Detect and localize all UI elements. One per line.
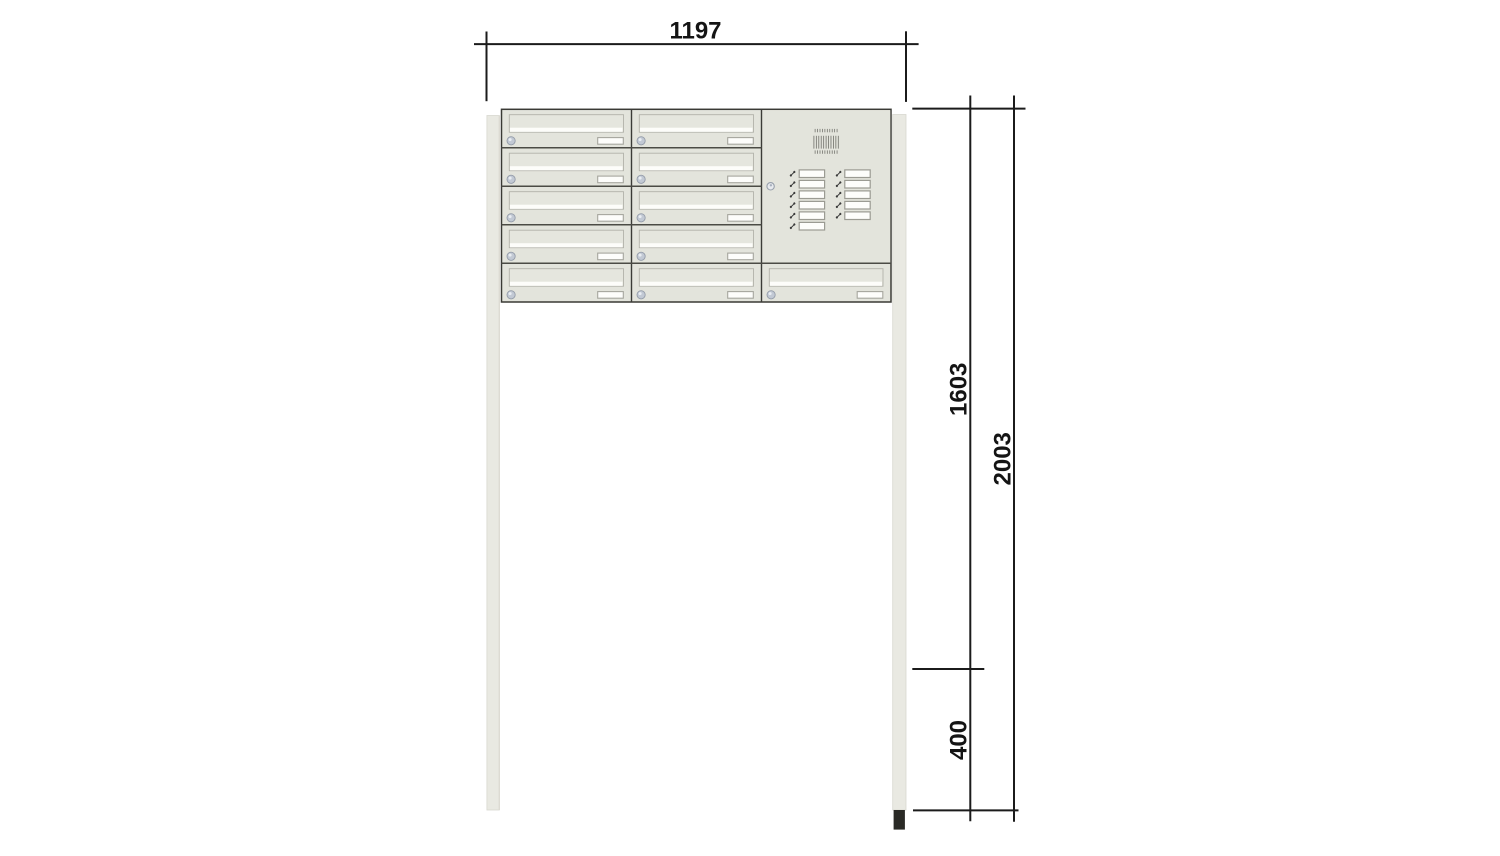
svg-text:1197: 1197 (669, 18, 721, 45)
svg-text:2003: 2003 (990, 432, 1017, 485)
svg-text:1603: 1603 (946, 363, 973, 416)
svg-text:400: 400 (946, 720, 973, 760)
